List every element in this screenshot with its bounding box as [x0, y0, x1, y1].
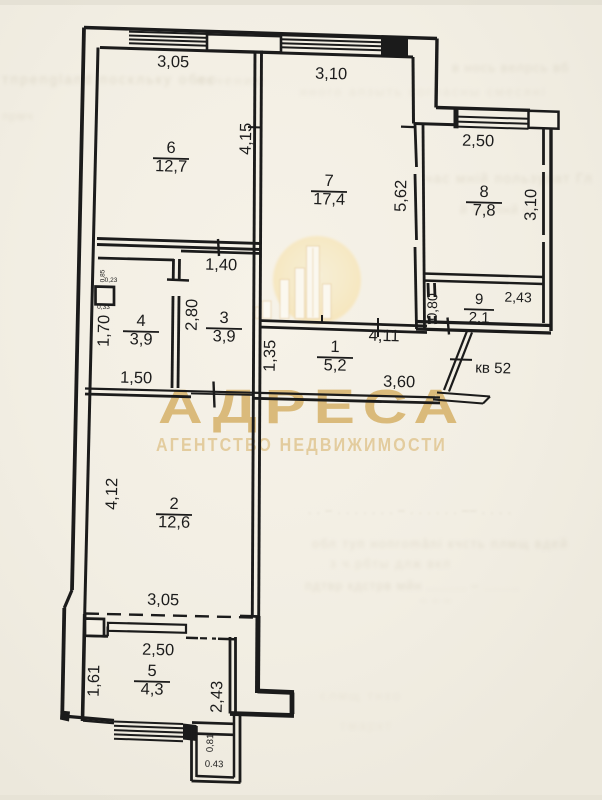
- svg-text:3,05: 3,05: [157, 53, 190, 72]
- svg-text:2: 2: [169, 495, 179, 513]
- svg-text:12,6: 12,6: [158, 513, 191, 532]
- svg-text:4,11: 4,11: [368, 327, 399, 346]
- svg-text:5,62: 5,62: [392, 180, 411, 213]
- svg-text:4,3: 4,3: [140, 680, 163, 699]
- svg-text:кв 52: кв 52: [475, 360, 511, 378]
- svg-text:1,61: 1,61: [85, 665, 104, 698]
- svg-text:1,35: 1,35: [261, 340, 280, 373]
- svg-text:2,43: 2,43: [504, 289, 532, 306]
- svg-text:9: 9: [475, 291, 484, 308]
- svg-text:5: 5: [147, 662, 157, 680]
- svg-text:2,1: 2,1: [468, 309, 489, 327]
- svg-text:0,81: 0,81: [205, 734, 216, 753]
- svg-text:5,2: 5,2: [323, 356, 346, 375]
- svg-text:7,8: 7,8: [472, 201, 495, 220]
- svg-text:4,12: 4,12: [103, 478, 122, 511]
- svg-text:0,33: 0,33: [97, 304, 110, 311]
- svg-text:17,4: 17,4: [313, 190, 346, 209]
- svg-text:час мній пользуват Гл: час мній пользуват Гл: [425, 171, 593, 186]
- svg-text:3: 3: [219, 309, 229, 327]
- svg-text:. . – . . . . . . . – . . .: . . – . . . . . . . – . . . . . . –– . .…: [308, 503, 512, 517]
- svg-text:1,70: 1,70: [95, 315, 114, 348]
- svg-text:прмч: прмч: [2, 109, 34, 123]
- svg-text:0,23: 0,23: [105, 277, 118, 284]
- svg-text:3,10: 3,10: [315, 65, 348, 84]
- svg-text:2,50: 2,50: [142, 641, 175, 660]
- svg-text:7: 7: [324, 172, 334, 190]
- svg-text:0,80: 0,80: [424, 293, 441, 321]
- svg-text:пдтвр кдстрв мйн ......... –: пдтвр кдстрв мйн ......... – ........: [305, 579, 520, 593]
- svg-text:в нось велрсь вб: в нось велрсь вб: [452, 60, 569, 75]
- svg-text:2,43: 2,43: [208, 681, 227, 714]
- svg-text:0.43: 0.43: [205, 759, 224, 770]
- svg-text:4: 4: [136, 312, 146, 330]
- svg-text:4,15: 4,15: [237, 123, 256, 156]
- svg-text:нного апзыть согласны смесяні: нного апзыть согласны смесяні: [300, 84, 547, 99]
- svg-text:АДРЕСА: АДРЕСА: [158, 381, 466, 434]
- svg-text:АГЕНТСТВО НЕДВИЖИМОСТИ: АГЕНТСТВО НЕДВИЖИМОСТИ: [156, 434, 447, 455]
- svg-text:1,50: 1,50: [120, 369, 153, 388]
- svg-text:3,9: 3,9: [129, 330, 152, 349]
- svg-text:2,50: 2,50: [462, 132, 495, 151]
- svg-text:6: 6: [166, 139, 176, 157]
- svg-text:3,10: 3,10: [522, 189, 541, 222]
- svg-text:2,80: 2,80: [183, 299, 202, 332]
- svg-text:тмаркт: тмаркт: [340, 718, 393, 733]
- svg-text:3,60: 3,60: [383, 373, 416, 392]
- svg-text:тпрengland поскльку обес: тпрengland поскльку обес: [2, 71, 217, 87]
- svg-text:1,40: 1,40: [205, 256, 238, 275]
- svg-text:12,7: 12,7: [155, 157, 188, 176]
- svg-text:8: 8: [479, 183, 489, 201]
- svg-text:обл туп нопromâni кчсть плм: обл туп нопromâni кчсть плмщ вдей: [312, 537, 569, 551]
- svg-text:слмщ тнхо: слмщ тнхо: [320, 688, 402, 703]
- svg-text:з ч.рбты длж вкл: з ч.рбты длж вкл: [330, 557, 451, 571]
- svg-text:1: 1: [330, 338, 340, 356]
- svg-text:3,9: 3,9: [212, 327, 235, 346]
- svg-text:– – –: – – –: [420, 593, 452, 607]
- svg-text:3,05: 3,05: [147, 591, 180, 610]
